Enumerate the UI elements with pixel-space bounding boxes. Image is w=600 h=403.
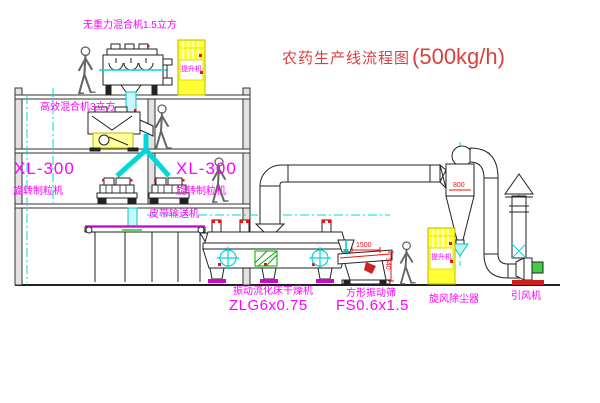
label-granulator-right-name: 旋转制粒机 bbox=[176, 187, 226, 197]
diagram-title: 农药生产线流程图(500kg/h) bbox=[282, 44, 505, 70]
label-granulator-left-model: XL-300 bbox=[14, 160, 75, 177]
label-high-efficiency-mixer: 高效混合机3立方 bbox=[40, 103, 116, 113]
belt-conveyor bbox=[85, 226, 220, 282]
process-flow-diagram: 农药生产线流程图(500kg/h) 无重力混合机1.5立方 高效混合机3立方 X… bbox=[0, 0, 600, 403]
dim-sieve-height: 540 bbox=[384, 258, 391, 270]
fan-and-stack bbox=[470, 148, 544, 285]
label-dryer-name: 振动流化床干燥机 bbox=[233, 287, 313, 297]
label-belt-conveyor: 皮带输送机 bbox=[149, 210, 199, 220]
label-dryer-model: ZLG6x0.75 bbox=[229, 298, 308, 313]
discharge-chute bbox=[128, 208, 137, 227]
label-fan: 引风机 bbox=[511, 292, 541, 302]
label-elevator-top-text: 提升机 bbox=[181, 66, 202, 73]
label-cyclone: 旋风除尘器 bbox=[429, 295, 479, 305]
label-granulator-left-name: 旋转制粒机 bbox=[13, 187, 63, 197]
label-elevator-right-text: 提升机 bbox=[431, 254, 452, 261]
title-chinese: 农药生产线流程图 bbox=[282, 47, 410, 68]
high-efficiency-mixer bbox=[88, 107, 153, 151]
granulator-left bbox=[97, 178, 137, 204]
dim-cyclone-width: 800 bbox=[453, 182, 465, 189]
label-granulator-right-model: XL-300 bbox=[176, 160, 237, 177]
label-sieve-model: FS0.6x1.5 bbox=[336, 298, 409, 313]
worker-figure-top-floor bbox=[79, 47, 95, 93]
dim-sieve-length: 1500 bbox=[356, 242, 372, 249]
label-zero-gravity-mixer: 无重力混合机1.5立方 bbox=[83, 21, 177, 31]
worker-figure-ground bbox=[401, 242, 415, 284]
title-capacity: (500kg/h) bbox=[412, 44, 505, 70]
exhaust-duct bbox=[256, 165, 446, 232]
worker-figure-second-floor bbox=[156, 105, 171, 149]
